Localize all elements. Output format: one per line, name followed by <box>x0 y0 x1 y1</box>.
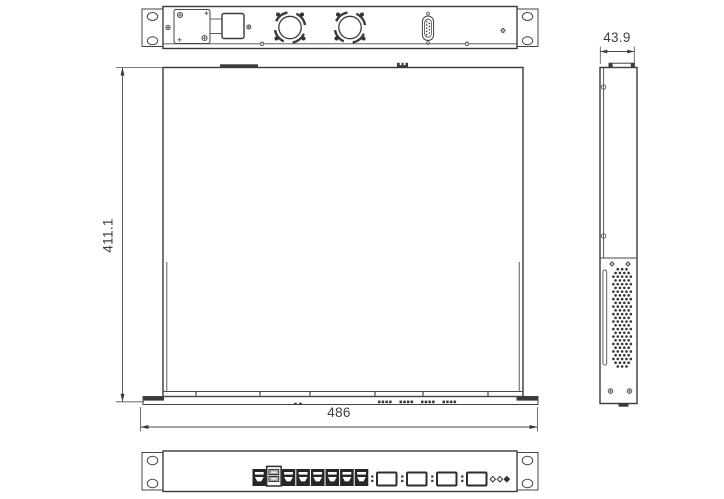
vent-hole <box>625 320 628 323</box>
ear-slot-icon <box>147 456 157 464</box>
vent-hole <box>614 302 617 305</box>
vent-hole <box>623 272 626 275</box>
bezel-port-marks-group <box>378 401 456 404</box>
sfp-port-icon <box>461 473 486 486</box>
front-panel-body <box>163 451 517 492</box>
vent-hole <box>627 339 630 342</box>
vent-hole <box>612 358 615 361</box>
rear-panel-view <box>142 7 538 49</box>
vent-hole <box>616 350 619 353</box>
port-row <box>253 466 487 486</box>
vent-hole <box>621 358 624 361</box>
vent-hole <box>621 320 624 323</box>
vent-hole <box>616 313 619 316</box>
vent-hole <box>619 294 622 297</box>
screw-icon <box>627 389 632 394</box>
vent-perforation <box>612 268 632 368</box>
vent-hole <box>619 346 622 349</box>
vent-hole <box>625 275 628 278</box>
vent-hole <box>627 324 630 327</box>
vent-hole <box>627 302 630 305</box>
vent-hole <box>612 275 615 278</box>
arrowhead-icon <box>530 425 538 429</box>
ear-slot-icon <box>147 37 157 45</box>
vent-hole <box>612 290 615 293</box>
vent-hole <box>616 298 619 301</box>
bezel-port-marks <box>421 401 435 404</box>
fan-screw-icon <box>275 37 279 41</box>
vent-hole <box>614 317 617 320</box>
bezel-mark <box>299 403 302 405</box>
vent-hole <box>623 279 626 282</box>
top-connector <box>397 63 408 67</box>
vent-hole <box>623 331 626 334</box>
vent-hole <box>625 335 628 338</box>
vent-hole <box>630 358 633 361</box>
fan-screw-icon <box>302 37 306 41</box>
tick-mark <box>195 392 196 396</box>
screw-icon <box>601 85 605 89</box>
vent-hole <box>612 313 615 316</box>
vent-hole <box>612 305 615 308</box>
vent-hole <box>630 343 633 346</box>
vent-hole <box>623 294 626 297</box>
vent-hole <box>630 298 633 301</box>
vent-hole <box>627 361 630 364</box>
vent-hole <box>616 290 619 293</box>
vent-hole <box>623 339 626 342</box>
side-view <box>600 63 637 407</box>
vent-hole <box>616 268 619 271</box>
tick-mark <box>374 392 375 396</box>
rj45-port-icon <box>355 469 369 486</box>
vent-hole <box>627 287 630 290</box>
vent-hole <box>621 268 624 271</box>
vent-hole <box>612 343 615 346</box>
vent-hole <box>623 346 626 349</box>
vent-hole <box>619 317 622 320</box>
vent-hole <box>619 302 622 305</box>
fan-screw-icon <box>300 13 304 17</box>
vent-hole <box>619 324 622 327</box>
vent-hole <box>627 346 630 349</box>
ear-slot-icon <box>147 479 157 487</box>
tick-mark <box>422 392 423 396</box>
tick-mark <box>259 392 260 396</box>
vent-hole <box>614 354 617 357</box>
vent-hole <box>619 354 622 357</box>
vent-hole <box>621 350 624 353</box>
vent-hole <box>616 283 619 286</box>
bezel-ear-right <box>517 397 538 401</box>
db9-serial-port-icon <box>422 12 433 44</box>
screw-icon <box>260 42 264 46</box>
rack-ear-left <box>142 453 163 491</box>
rj45-port-icon <box>296 469 310 486</box>
vent-hole <box>627 279 630 282</box>
vent-hole <box>614 331 617 334</box>
vent-hole <box>625 350 628 353</box>
vent-hole <box>630 313 633 316</box>
vent-hole <box>625 290 628 293</box>
vent-hole <box>621 283 624 286</box>
vent-hole <box>630 320 633 323</box>
arrowhead-icon <box>121 68 125 76</box>
vent-hole <box>627 309 630 312</box>
vent-hole <box>612 283 615 286</box>
rj45-port-icon <box>282 469 296 486</box>
vent-hole <box>627 272 630 275</box>
vent-hole <box>625 298 628 301</box>
vent-hole <box>614 346 617 349</box>
vent-hole <box>630 335 633 338</box>
bezel-mark <box>294 403 297 405</box>
vent-hole <box>627 331 630 334</box>
vent-hole <box>625 365 628 368</box>
vent-hole <box>630 275 633 278</box>
vent-hole <box>614 339 617 342</box>
vent-hole <box>614 287 617 290</box>
vent-hole <box>627 317 630 320</box>
vent-hole <box>612 350 615 353</box>
vent-hole <box>630 283 633 286</box>
vent-hole <box>619 272 622 275</box>
vent-hole <box>625 268 628 271</box>
rack-ear-right <box>517 453 538 491</box>
arrowhead-icon <box>600 50 607 54</box>
vent-hole <box>614 324 617 327</box>
vent-hole <box>630 350 633 353</box>
side-slot <box>603 270 607 365</box>
vent-hole <box>627 354 630 357</box>
vent-hole <box>616 328 619 331</box>
vent-hole <box>623 302 626 305</box>
vent-hole <box>623 354 626 357</box>
top-tab <box>220 64 258 67</box>
vent-hole <box>623 324 626 327</box>
vent-hole <box>621 343 624 346</box>
vent-hole <box>621 365 624 368</box>
arrowhead-icon <box>627 50 634 54</box>
vent-hole <box>625 283 628 286</box>
vent-hole <box>614 279 617 282</box>
fan-screw-icon <box>362 37 366 41</box>
vent-hole <box>616 343 619 346</box>
dual-usb-port-icon <box>267 466 281 486</box>
vent-hole <box>625 313 628 316</box>
cross-screw-mark <box>205 11 209 15</box>
vent-hole <box>619 361 622 364</box>
vent-hole <box>621 298 624 301</box>
vent-hole <box>614 361 617 364</box>
vent-hole <box>614 294 617 297</box>
fan-screw-icon <box>360 13 364 17</box>
vent-hole <box>623 317 626 320</box>
sfp-port-icon <box>371 473 396 486</box>
screw-icon <box>610 262 615 267</box>
vent-hole <box>621 328 624 331</box>
screw-icon <box>608 389 613 394</box>
vent-hole <box>619 279 622 282</box>
vent-hole <box>623 287 626 290</box>
vent-hole <box>623 361 626 364</box>
chassis-top-view <box>143 63 538 405</box>
sfp-port-icon <box>431 473 456 486</box>
rack-ear-left <box>142 9 163 47</box>
ear-slot-icon <box>522 456 532 464</box>
vent-hole <box>621 290 624 293</box>
bezel-ear-left <box>144 397 165 401</box>
vent-hole <box>621 275 624 278</box>
vent-hole <box>627 294 630 297</box>
vent-hole <box>623 309 626 312</box>
vent-hole <box>621 305 624 308</box>
bezel-port-marks <box>400 401 414 404</box>
vent-hole <box>625 328 628 331</box>
ear-slot-icon <box>522 13 532 21</box>
vent-hole <box>616 358 619 361</box>
cross-screw-mark <box>178 38 182 42</box>
screw-icon <box>601 234 605 238</box>
screw-icon <box>166 25 170 29</box>
vent-hole <box>616 275 619 278</box>
fan-icon <box>270 7 310 47</box>
vent-hole <box>616 305 619 308</box>
led-diamond-icon <box>504 477 509 482</box>
bottom-tab <box>619 404 629 407</box>
fan-screw-icon <box>276 13 280 17</box>
dimension-width-label: 486 <box>314 405 364 420</box>
vent-hole <box>619 309 622 312</box>
rj45-port-icon <box>253 469 267 486</box>
vent-hole <box>619 331 622 334</box>
vent-hole <box>616 320 619 323</box>
dimension-height-label: 43.9 <box>592 30 642 45</box>
psu-plate <box>174 10 210 44</box>
front-panel-view <box>142 451 538 492</box>
fan-screw-icon <box>335 37 339 41</box>
vent-hole <box>612 298 615 301</box>
led-indicator-group <box>490 477 509 482</box>
vent-hole <box>619 287 622 290</box>
screw-icon <box>626 262 631 267</box>
vent-hole <box>614 272 617 275</box>
sfp-port-icon <box>401 473 426 486</box>
vent-hole <box>621 313 624 316</box>
tick-mark <box>487 392 488 396</box>
dimensional-drawing-page: 411.1 486 43.9 <box>0 0 724 499</box>
vent-hole <box>612 328 615 331</box>
screw-icon <box>501 28 506 33</box>
bezel-port-marks <box>443 401 457 404</box>
arrowhead-icon <box>121 394 125 402</box>
rear-panel-body <box>163 7 517 49</box>
front-bezel-strip <box>143 397 538 405</box>
ear-slot-icon <box>522 479 532 487</box>
dimension-height <box>600 47 634 65</box>
screw-icon <box>465 42 469 46</box>
vent-hole <box>625 343 628 346</box>
vent-hole <box>630 290 633 293</box>
vent-hole <box>616 365 619 368</box>
dimension-depth <box>116 68 164 402</box>
vent-hole <box>625 305 628 308</box>
rj45-port-icon <box>326 469 340 486</box>
chassis-outline <box>163 68 523 397</box>
arrowhead-icon <box>141 425 149 429</box>
vent-hole <box>619 339 622 342</box>
rj45-port-icon <box>340 469 354 486</box>
dimension-depth-label: 411.1 <box>101 214 116 258</box>
power-inlet-icon <box>210 14 251 39</box>
fan-screw-icon <box>336 13 340 17</box>
vent-hole <box>621 335 624 338</box>
fan-icon <box>330 7 370 47</box>
vent-hole <box>630 305 633 308</box>
tick-mark-group <box>195 392 488 396</box>
vent-hole <box>625 358 628 361</box>
tick-mark <box>309 392 310 396</box>
rack-ear-right <box>517 9 538 47</box>
led-diamond-icon <box>490 477 495 482</box>
bezel-port-marks <box>378 401 392 404</box>
rj45-port-icon <box>311 469 325 486</box>
vent-hole <box>612 320 615 323</box>
fan-group <box>270 7 370 47</box>
vent-hole <box>612 335 615 338</box>
vent-hole <box>614 309 617 312</box>
vent-hole <box>616 335 619 338</box>
ear-slot-icon <box>522 37 532 45</box>
vent-hole <box>630 328 633 331</box>
ear-slot-icon <box>147 13 157 21</box>
led-diamond-icon <box>497 477 502 482</box>
